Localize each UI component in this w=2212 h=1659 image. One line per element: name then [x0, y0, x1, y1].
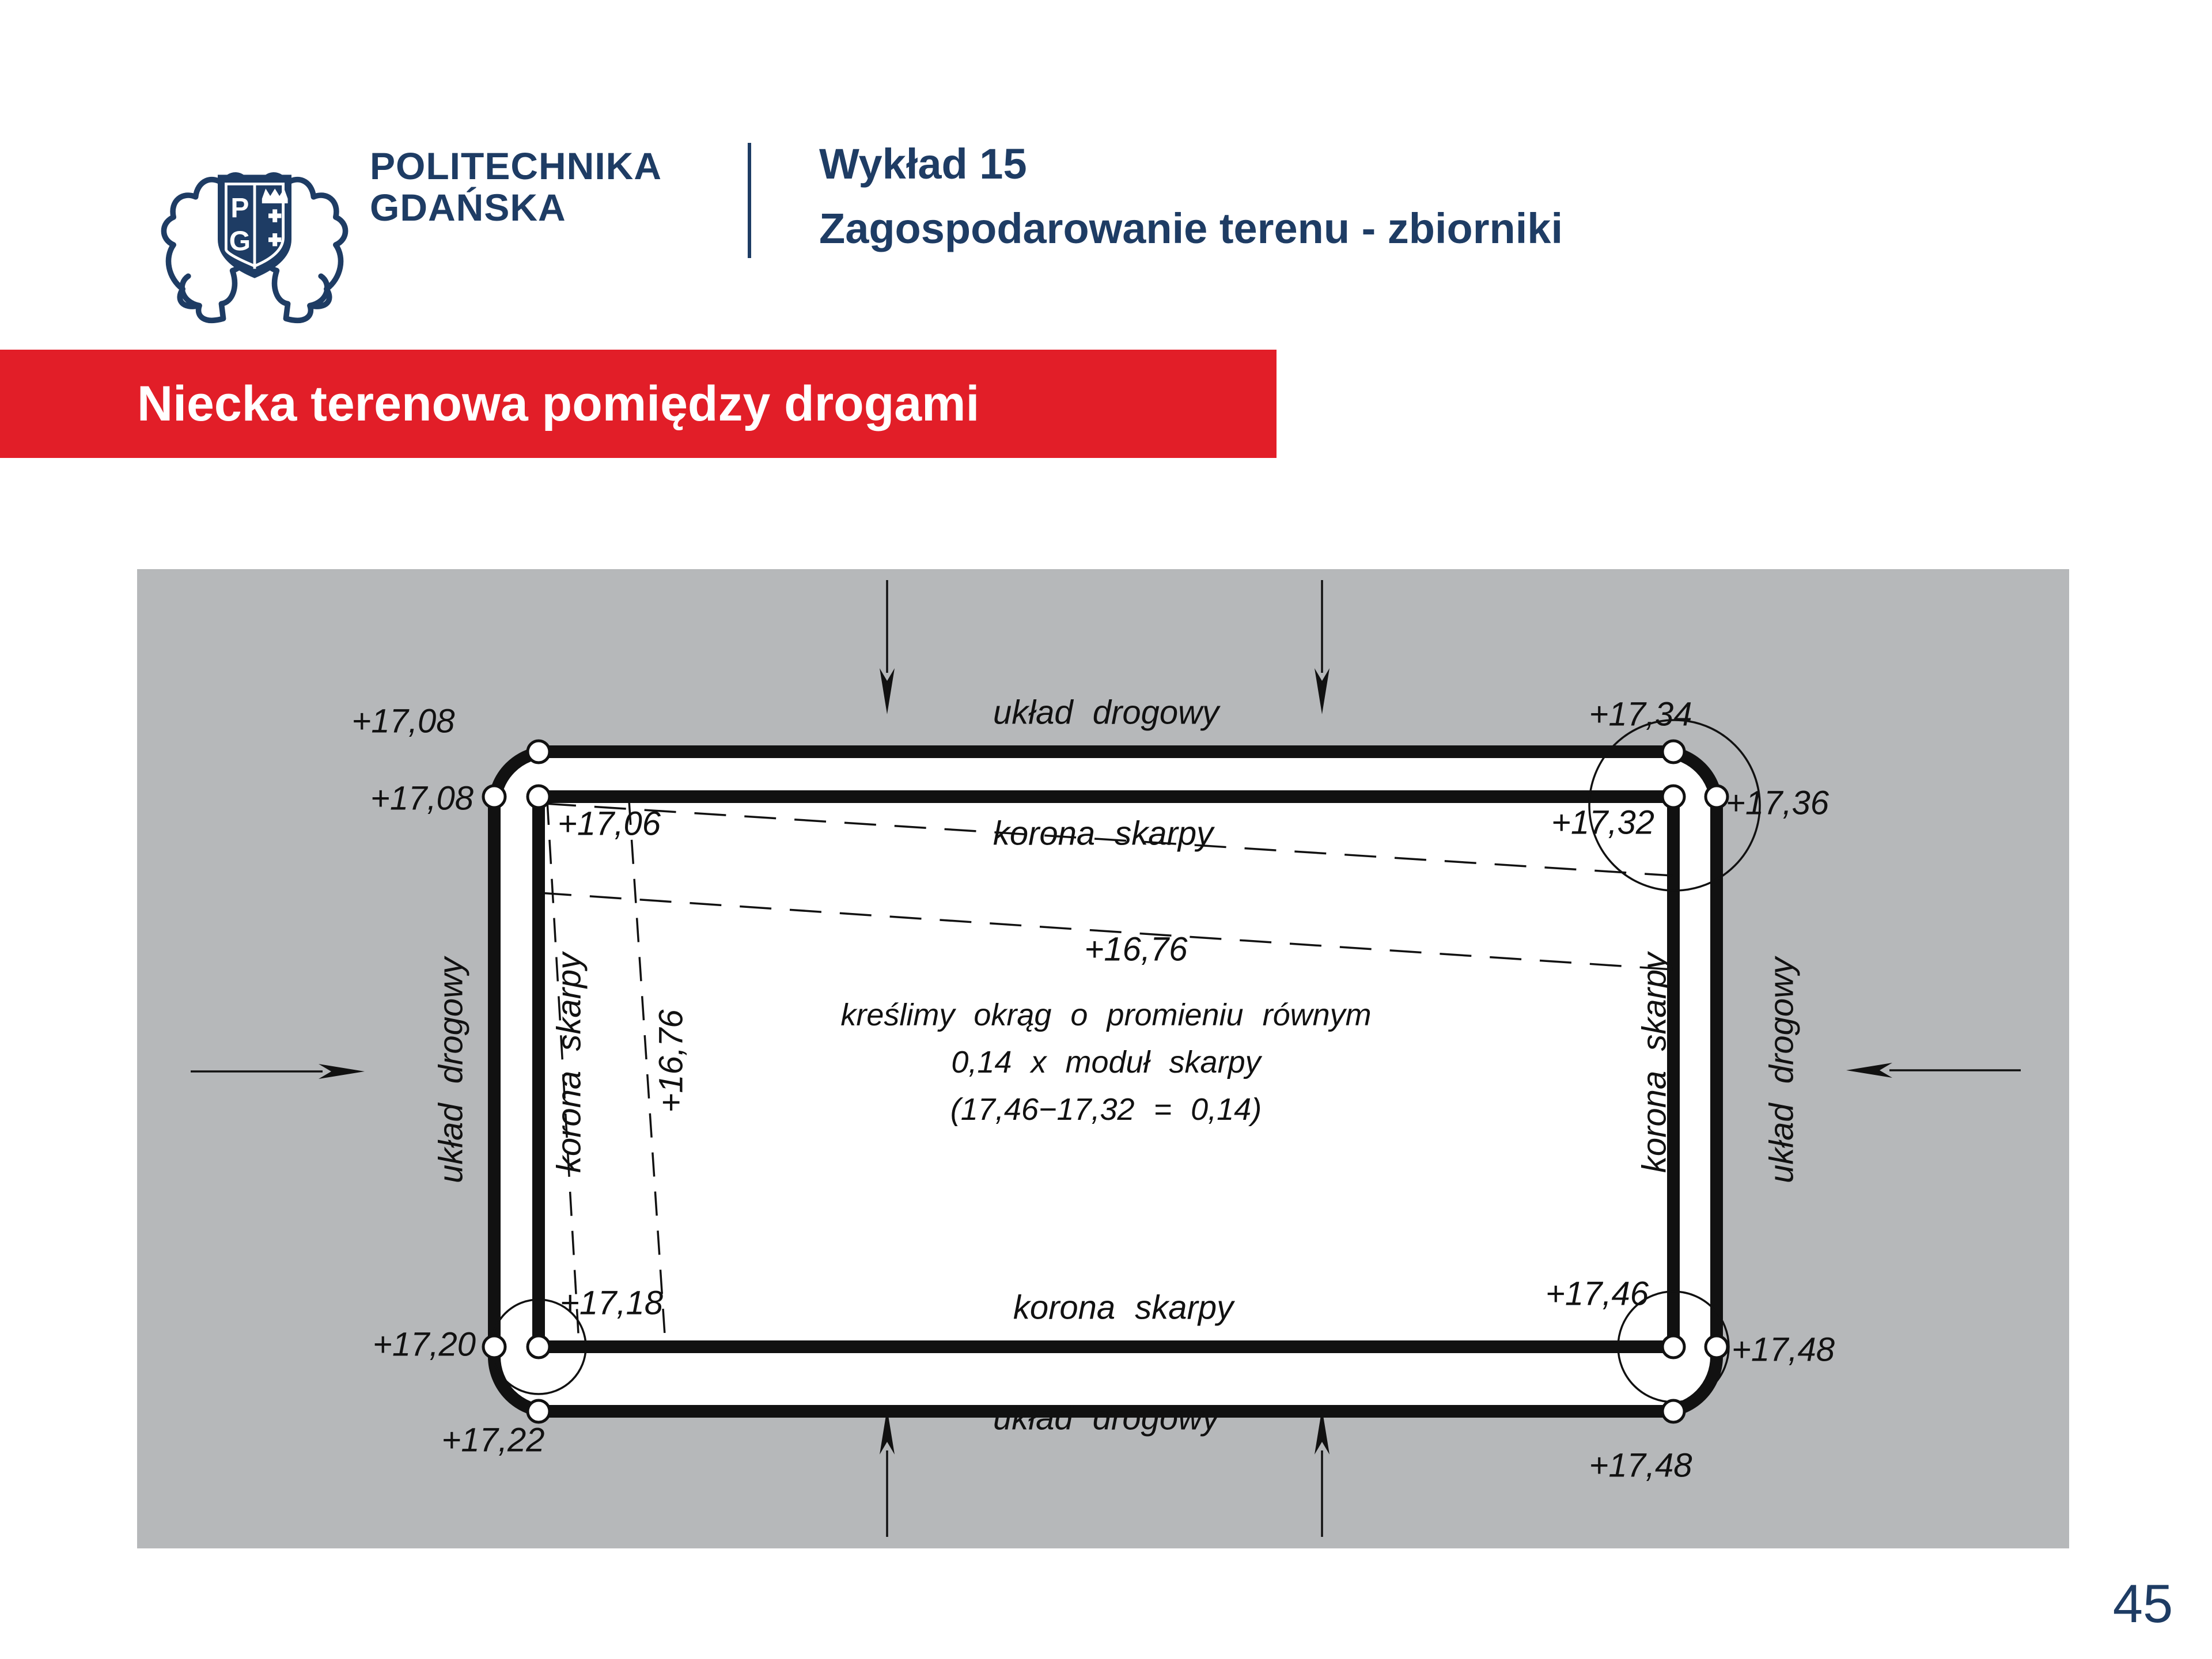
road-label-bottom: układ drogowy — [993, 1400, 1221, 1437]
page-number: 45 — [2097, 1573, 2189, 1635]
elevation-bottom-right-inner: +17,46 — [1546, 1275, 1649, 1313]
road-label-top: układ drogowy — [993, 694, 1221, 732]
crest-crown-icon — [262, 188, 288, 203]
crest-label-left: korona skarpy — [551, 951, 588, 1173]
elevation-bottom-left-outer-bottom: +17,22 — [441, 1422, 544, 1459]
header-divider — [748, 143, 751, 258]
elevation-top-right-inner: +17,32 — [1551, 804, 1654, 842]
elevation-top-left-outer-top: +17,08 — [351, 703, 454, 740]
elevation-bottom-left-inner: +17,18 — [560, 1285, 663, 1322]
construction-note-line2: 0,14 x moduł skarpy — [951, 1045, 1262, 1080]
crest-label-right: korona skarpy — [1636, 951, 1673, 1173]
elevation-basin-contour-left: +16,76 — [653, 1009, 690, 1113]
lecture-number: Wykład 15 — [819, 139, 1027, 188]
elevation-top-left-inner: +17,06 — [558, 805, 661, 843]
crest-letter-p: P — [230, 193, 249, 224]
elevation-bottom-right-outer-side: +17,48 — [1732, 1331, 1835, 1369]
crest-label-top: korona skarpy — [993, 815, 1215, 853]
university-name-line1: POLITECHNIKA — [370, 145, 662, 187]
elevation-top-left-outer-side: +17,08 — [370, 780, 474, 817]
crest-shield-icon: P G — [219, 177, 290, 276]
terrain-basin-diagram: układ drogowy układ drogowy układ drogow… — [137, 569, 2069, 1548]
elevation-basin-contour: +16,76 — [1084, 931, 1188, 968]
lecture-topic: Zagospodarowanie terenu - zbiorniki — [819, 204, 1563, 253]
elevation-top-right-outer-top: +17,34 — [1589, 696, 1692, 733]
road-label-right: układ drogowy — [1763, 956, 1801, 1183]
construction-note-line3: (17,46−17,32 = 0,14) — [950, 1092, 1262, 1127]
elevation-bottom-left-outer-side: +17,20 — [373, 1326, 476, 1363]
crest-letter-g: G — [229, 226, 251, 257]
road-label-left: układ drogowy — [433, 956, 470, 1183]
construction-note-line1: kreślimy okrąg o promieniu równym — [840, 998, 1371, 1032]
elevation-top-right-outer-side: +17,36 — [1726, 785, 1830, 822]
section-banner: Niecka terenowa pomiędzy drogami — [0, 350, 1277, 458]
crest-label-bottom: korona skarpy — [1013, 1289, 1235, 1327]
university-name: POLITECHNIKA GDAŃSKA — [370, 145, 662, 228]
elevation-bottom-right-outer-bottom: +17,48 — [1589, 1447, 1692, 1484]
university-name-line2: GDAŃSKA — [370, 187, 662, 228]
pg-university-crest-icon: P G — [144, 143, 365, 328]
slide: P G POLITECHNIKA GDAŃSKA Wykład 15 Zagos… — [0, 0, 2212, 1659]
slide-title: Niecka terenowa pomiędzy drogami — [0, 376, 979, 433]
